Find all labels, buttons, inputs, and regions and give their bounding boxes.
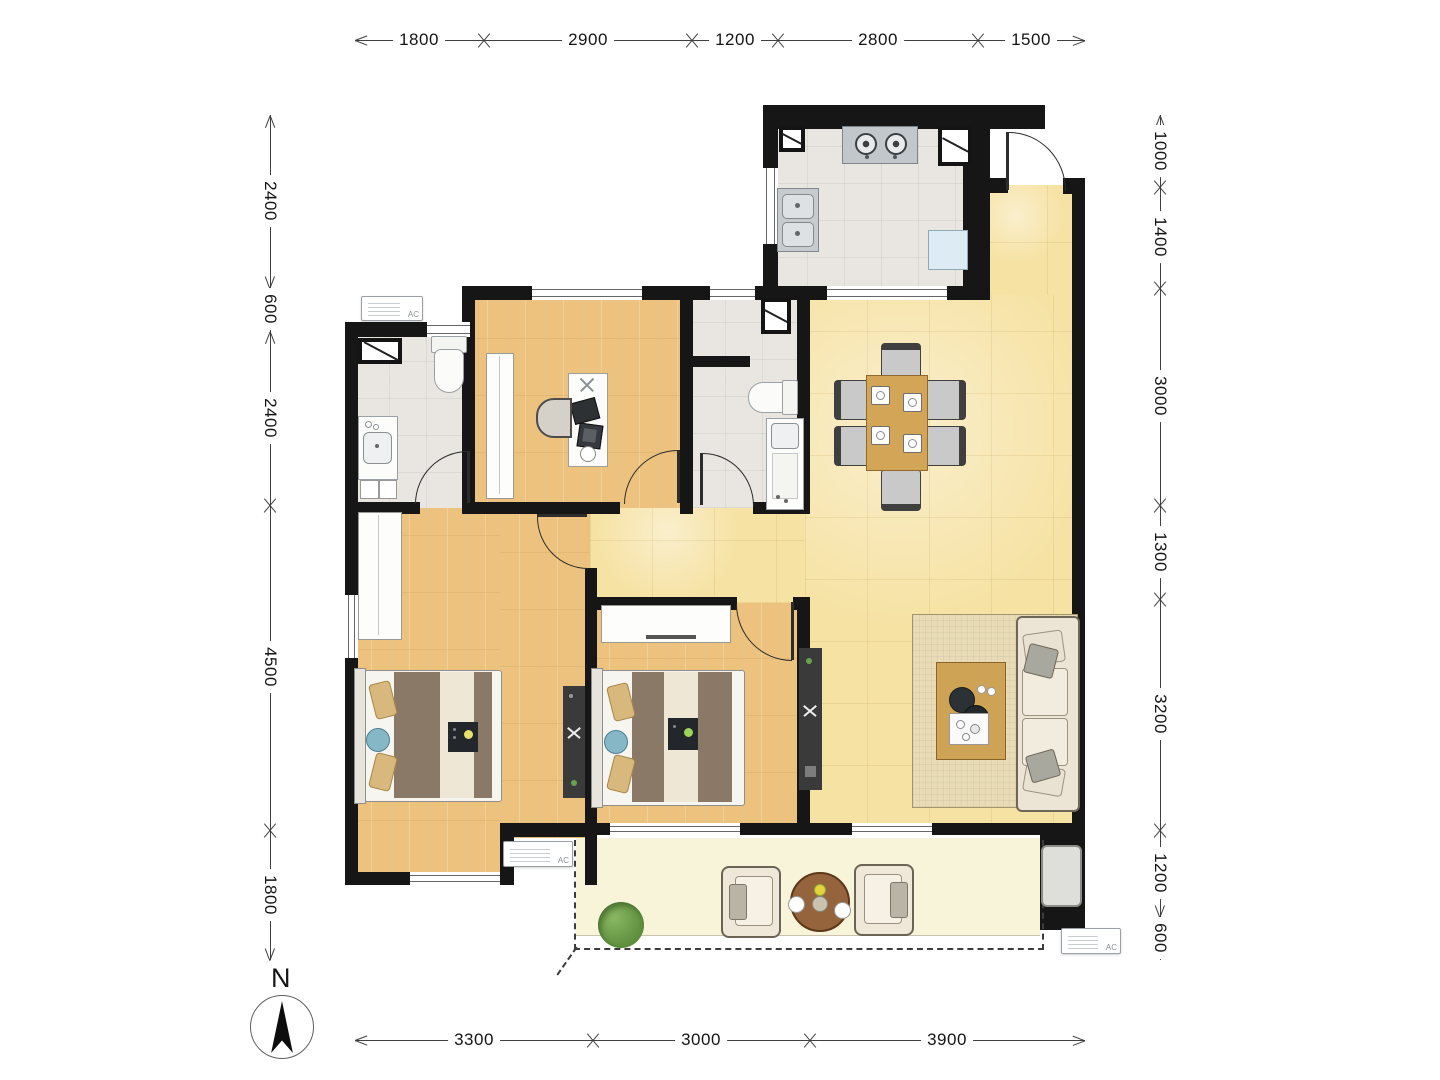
place-setting (903, 434, 922, 453)
kitchen-sink (777, 188, 819, 252)
ac-unit: AC (503, 841, 573, 867)
dining-chair (924, 426, 966, 466)
burner (885, 133, 907, 155)
toilet-tank (782, 380, 798, 415)
dim-label: 1200 (709, 30, 761, 50)
desk-chair (536, 398, 572, 438)
kitchen-corner-shaft (938, 126, 972, 166)
tv-panel-bedroom2 (799, 648, 822, 790)
wall-bath2-partition (693, 356, 750, 367)
decor-cup (987, 687, 996, 696)
dim-label: 3200 (1150, 688, 1170, 740)
armchair-cushion (890, 882, 908, 918)
dim-label: 3000 (1150, 370, 1170, 422)
window-bedroom2-bottom (610, 823, 740, 835)
dim-label: 1800 (260, 869, 280, 921)
stove-knob (893, 155, 897, 159)
armchair-cushion (729, 884, 747, 920)
ac-label: AC (558, 856, 569, 865)
dim-label: 1500 (1005, 30, 1057, 50)
tray-lamp (464, 730, 473, 739)
ac-unit: AC (1061, 928, 1121, 954)
tray (949, 713, 989, 745)
tray-item (956, 720, 965, 729)
tray-dot (453, 736, 456, 739)
deco-square (805, 766, 816, 777)
faucet (375, 444, 379, 448)
toilet-bowl (434, 349, 464, 393)
compass-n-label: N (271, 968, 291, 988)
tray-item (970, 724, 980, 734)
deco-dot (569, 694, 573, 698)
faucet (784, 499, 788, 503)
tray-dot (673, 725, 676, 728)
dining-chair (924, 380, 966, 420)
tablet-screen (582, 428, 597, 443)
window-master-left (345, 595, 358, 658)
window-master-bottom (410, 872, 500, 885)
dim-label: 4500 (260, 641, 280, 693)
window-living-bottom (852, 823, 932, 835)
tv-mark (803, 704, 817, 718)
vanity (766, 418, 804, 510)
vanity (358, 416, 398, 480)
dim-label: 3300 (448, 1030, 500, 1050)
place-setting (871, 386, 890, 405)
wall-mid-b (470, 502, 620, 514)
burner (855, 133, 877, 155)
dim-label: 1400 (1150, 211, 1170, 263)
plant-dot (806, 658, 812, 664)
shower-drain (358, 338, 402, 364)
bed-headboard (591, 668, 603, 808)
table-cup (788, 896, 805, 913)
decor-cup (977, 685, 986, 694)
bed-tray (448, 722, 478, 752)
wardrobe-divider (378, 515, 379, 635)
entry-door-arc (1009, 132, 1066, 191)
bedside-stool (604, 730, 628, 754)
window-kitchen-pass (827, 286, 947, 300)
place-setting (871, 426, 890, 445)
stove (842, 126, 918, 164)
balcony-armchair (854, 864, 914, 936)
plant-dot (571, 780, 577, 786)
corridor-floor (590, 508, 810, 603)
drain (795, 203, 800, 208)
wall-master-notch-top (500, 823, 597, 837)
balcony-outline-corner (556, 947, 577, 976)
coffee-table (936, 662, 1006, 760)
dim-label: 3900 (921, 1030, 973, 1050)
balcony-inner-edge (576, 935, 1040, 936)
table-vase (812, 896, 828, 912)
desk-plant (578, 376, 596, 394)
vanity-sink (363, 432, 392, 464)
wardrobe (601, 605, 731, 643)
tv-panel-master (563, 686, 585, 798)
floor-plan-canvas: AC AC AC 1800 2900 1200 2800 1500 2400 6… (0, 0, 1440, 1080)
stove-knob (865, 155, 869, 159)
desk-cup (580, 446, 596, 462)
bed-headboard (354, 668, 366, 804)
toilet (431, 336, 467, 394)
tray-item (962, 733, 970, 741)
vanity-dot (365, 421, 372, 428)
kitchen-flue-shaft (779, 126, 805, 152)
tray-lamp (684, 728, 693, 737)
balcony-cabinet (1041, 845, 1082, 907)
vanity-cabinet (772, 453, 798, 499)
place-setting (903, 393, 922, 412)
dim-label: 2800 (852, 30, 904, 50)
dim-label: 600 (1150, 917, 1170, 959)
tv-mark (567, 726, 581, 740)
dining-table (866, 375, 928, 471)
dim-label: 1200 (1150, 847, 1170, 899)
entry-floor (985, 185, 1075, 305)
dim-label: 2400 (260, 175, 280, 227)
wardrobe (358, 512, 402, 640)
window-bath1-top (427, 322, 470, 337)
laundry-unit (379, 480, 397, 499)
window-kitchen-left (763, 168, 778, 244)
dim-label: 1300 (1150, 526, 1170, 578)
study-closet (486, 353, 514, 499)
wall-study-bath2 (680, 286, 693, 514)
window-study-top (532, 286, 642, 300)
dim-label: 3000 (675, 1030, 727, 1050)
bed-tray (668, 718, 698, 750)
laundry-unit (360, 480, 379, 499)
table-cup (834, 902, 851, 919)
compass-circle (250, 995, 314, 1059)
sofa (1016, 616, 1080, 812)
bedside-stool (366, 728, 390, 752)
ac-unit: AC (361, 296, 423, 321)
toilet (748, 380, 798, 414)
vanity-dot (373, 424, 379, 430)
ac-label: AC (1106, 943, 1117, 952)
faucet (776, 495, 780, 499)
dim-label: 600 (260, 288, 280, 330)
shower-drain (761, 298, 791, 334)
window-bath2-top (710, 286, 755, 300)
wardrobe-handle (646, 635, 696, 639)
closet-divider (499, 356, 500, 494)
drain (795, 231, 800, 236)
compass-north-arrow (265, 1001, 299, 1053)
balcony-plant (598, 902, 644, 948)
balcony-table (790, 872, 850, 932)
dim-label: 1800 (393, 30, 445, 50)
dining-chair (881, 469, 921, 511)
tray-dot (453, 728, 456, 731)
toilet-bowl (748, 382, 786, 413)
balcony-armchair (721, 866, 781, 938)
table-flower (814, 884, 826, 896)
fridge (928, 230, 968, 270)
ac-label: AC (408, 310, 419, 319)
vanity-sink (771, 423, 799, 449)
dim-label: 2400 (260, 392, 280, 444)
dim-label: 2900 (562, 30, 614, 50)
dim-label: 1000 (1150, 125, 1170, 177)
